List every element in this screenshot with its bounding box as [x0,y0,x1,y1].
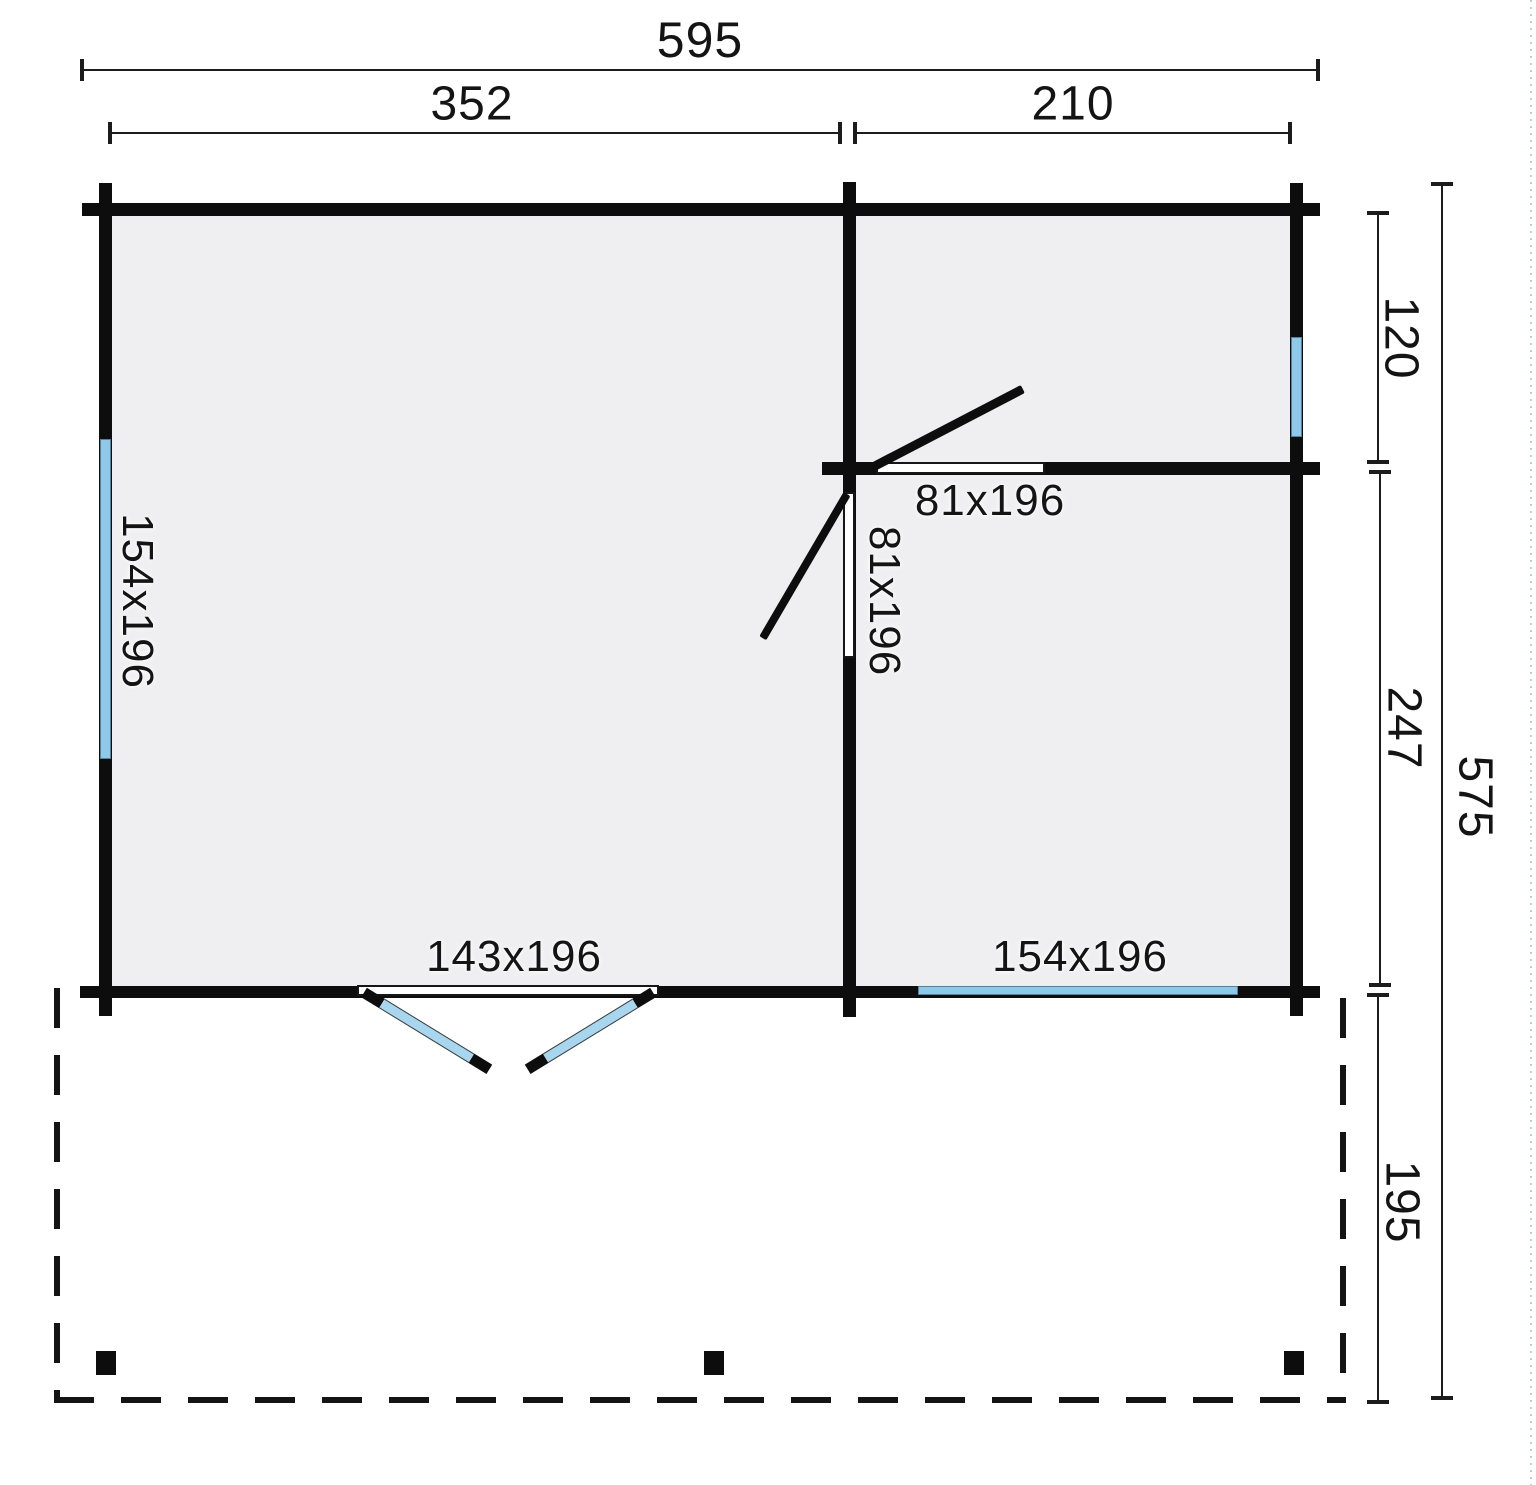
terrace-post-right [1284,1351,1304,1375]
dim-label-right-room-width: 210 [1031,77,1114,132]
dim-label-right-bottom-room-depth: 247 [1377,686,1432,769]
door-leaf-front-left [361,988,492,1074]
door-leaf-front-right [525,988,656,1074]
dim-label-overall-depth: 575 [1448,755,1503,838]
dim-label-overall-width: 595 [657,11,743,69]
door-opening-rear-right [876,462,1045,474]
label-interior-door: 81x196 [859,526,909,676]
terrace-edge-right [1340,998,1346,1398]
dim-label-terrace-depth: 195 [1375,1160,1430,1243]
wall-right [1290,183,1303,1016]
terrace-edge-left [54,988,60,1403]
terrace-post-middle [704,1351,724,1375]
label-front-double-door: 143x196 [426,932,602,982]
door-leaf-tip-cap [525,1054,549,1074]
window-right-wall [1291,337,1302,437]
dim-line-right-room-width [855,132,1290,134]
dim-label-left-room-width: 352 [430,77,513,132]
dim-line-left-room-width [110,132,840,134]
window-left-wall [100,439,111,759]
room-fill [105,209,1297,991]
terrace-post-left [96,1351,116,1375]
door-opening-front [357,985,659,996]
terrace-edge-bottom [54,1397,1346,1403]
dim-line-overall-depth [1441,184,1443,1398]
door-leaf-glass [379,999,474,1063]
door-opening-interior [843,492,855,658]
floor-plan-canvas: 595 352 210 120 247 195 575 154x196 81x1… [0,0,1536,1485]
window-front-wall [918,986,1238,995]
door-leaf-tip-cap [469,1054,493,1074]
page-edge-dots [1530,0,1532,1485]
dim-label-right-top-room-depth: 120 [1374,296,1429,379]
label-rear-right-door: 81x196 [915,476,1065,526]
dim-line-overall-width [82,69,1318,71]
door-leaf-glass [543,999,638,1063]
wall-top [82,203,1320,216]
label-left-wall-window: 154x196 [112,513,162,689]
label-front-window: 154x196 [992,932,1168,982]
